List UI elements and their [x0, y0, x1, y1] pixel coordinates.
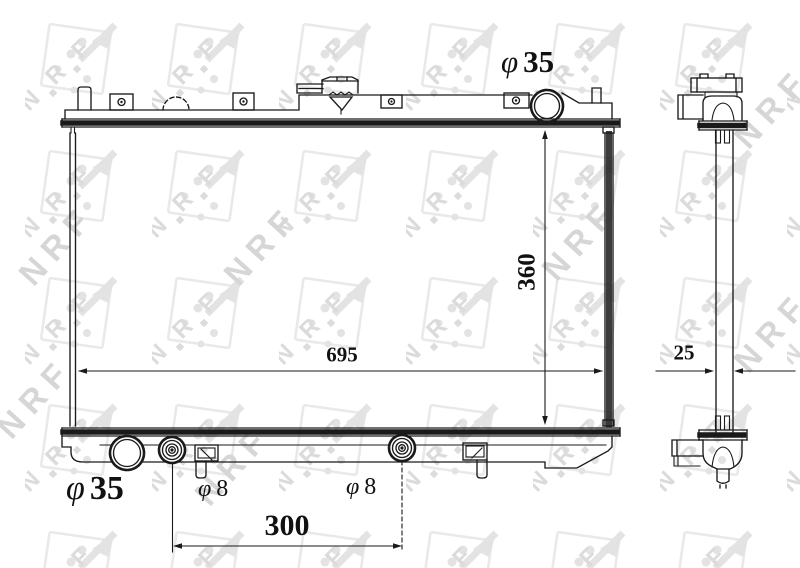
right-clip [463, 443, 487, 478]
side-bottom-tank [672, 430, 747, 488]
diameter-value: 35 [523, 44, 554, 79]
label-core-width: 695 [326, 345, 358, 366]
bottom-header-serration [62, 428, 620, 436]
dim-core-height [542, 130, 548, 425]
side-core [716, 130, 734, 433]
diameter-symbol: φ [198, 476, 211, 502]
left-clip [195, 445, 218, 478]
left-lug [78, 87, 91, 110]
top-header-serration [62, 119, 620, 127]
diameter-value: 8 [216, 476, 228, 502]
mounting-bracket [233, 93, 254, 110]
side-top-tank [678, 95, 747, 143]
label-right-fitting-diameter: φ8 [346, 475, 376, 499]
diameter-value: 35 [90, 470, 124, 507]
bottom-tank [62, 428, 620, 478]
label-core-depth: 25 [674, 343, 695, 364]
label-left-fitting-diameter: φ8 [198, 477, 228, 501]
filler-cap [322, 77, 358, 93]
core-left-channel [70, 127, 76, 426]
right-lug [592, 88, 601, 103]
side-outlet-pipe [672, 440, 703, 466]
dim-core-width [78, 368, 603, 374]
drain-plug [717, 469, 729, 488]
dim-core-depth [656, 368, 795, 374]
mounting-bracket [110, 94, 133, 110]
side-inlet-pipe [678, 95, 703, 119]
label-top-inlet-diameter: φ35 [501, 46, 554, 77]
inlet-pipe [531, 90, 563, 122]
right-phi8-fitting [389, 435, 415, 461]
diameter-symbol: φ [66, 470, 85, 507]
knockout-arc [163, 97, 189, 110]
top-tank [62, 77, 620, 127]
label-fitting-spacing: 300 [265, 511, 310, 541]
overflow-tube [297, 84, 323, 93]
side-view [672, 74, 747, 488]
left-phi8-fitting [159, 437, 185, 463]
core-right-channel [603, 127, 614, 426]
diameter-symbol: φ [346, 474, 359, 500]
mounting-bracket [381, 95, 402, 108]
side-filler-cap [691, 74, 742, 97]
outlet-pipe [110, 436, 144, 470]
label-core-height: 360 [515, 253, 540, 291]
diameter-value: 8 [364, 474, 376, 500]
diameter-symbol: φ [501, 44, 518, 79]
technical-drawing-page: N R F NRF NRF NRF NRF NRF NRF NRF [0, 0, 800, 568]
label-bottom-outlet-diameter: φ35 [66, 472, 124, 506]
